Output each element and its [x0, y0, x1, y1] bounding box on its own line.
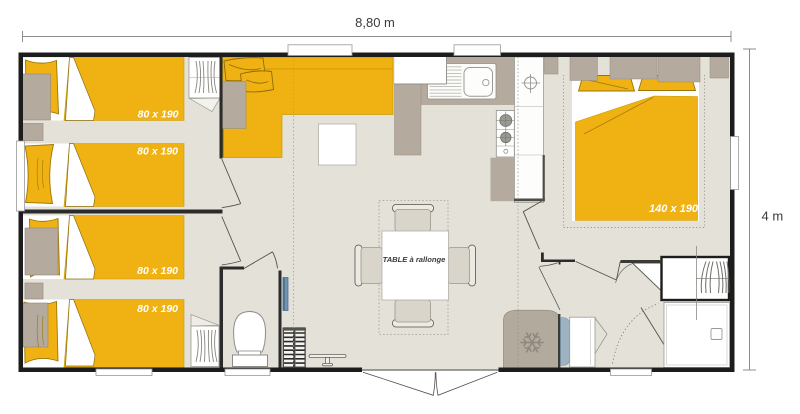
- svg-text:80 x 190: 80 x 190: [137, 146, 178, 158]
- svg-text:8,80 m: 8,80 m: [355, 15, 395, 30]
- svg-text:4 m: 4 m: [762, 209, 784, 224]
- svg-text:80 x 190: 80 x 190: [137, 303, 178, 315]
- svg-text:140 x 190: 140 x 190: [649, 203, 699, 215]
- svg-text:80 x 190: 80 x 190: [137, 265, 178, 277]
- svg-text:80 x 190: 80 x 190: [138, 109, 179, 121]
- svg-text:TABLE à rallonge: TABLE à rallonge: [383, 255, 447, 264]
